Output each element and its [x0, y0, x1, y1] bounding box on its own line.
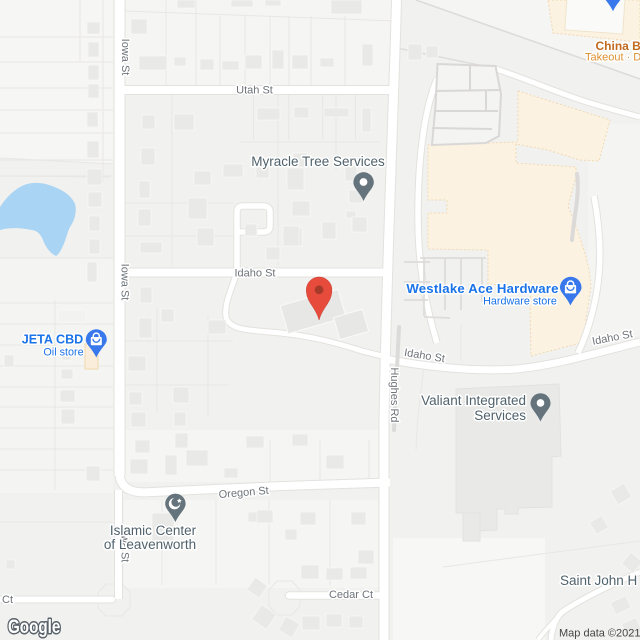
svg-text:Valiant Integrated: Valiant Integrated	[421, 393, 526, 408]
svg-text:Saint John H: Saint John H	[560, 573, 637, 588]
svg-text:Map data ©2021: Map data ©2021	[559, 628, 640, 640]
svg-text:Hardware store: Hardware store	[483, 296, 557, 308]
svg-text:Idaho St: Idaho St	[235, 268, 276, 280]
svg-text:Ct: Ct	[2, 594, 13, 606]
svg-text:Westlake Ace Hardware: Westlake Ace Hardware	[406, 281, 558, 296]
svg-text:Iowa St: Iowa St	[119, 39, 131, 76]
svg-text:Takeout · Di: Takeout · Di	[585, 52, 640, 64]
svg-text:of Leavenworth: of Leavenworth	[104, 537, 196, 552]
svg-text:Hughes Rd: Hughes Rd	[388, 367, 400, 422]
svg-text:Google: Google	[8, 615, 60, 637]
svg-text:Myracle Tree Services: Myracle Tree Services	[251, 154, 385, 169]
svg-text:JETA CBD: JETA CBD	[22, 333, 84, 347]
svg-text:Oil store: Oil store	[43, 347, 83, 359]
svg-text:Utah St: Utah St	[236, 85, 273, 97]
svg-text:Iowa St: Iowa St	[119, 264, 131, 301]
svg-text:Cedar Ct: Cedar Ct	[329, 589, 373, 601]
svg-text:Islamic Center: Islamic Center	[110, 523, 197, 538]
svg-text:Services: Services	[474, 408, 526, 423]
